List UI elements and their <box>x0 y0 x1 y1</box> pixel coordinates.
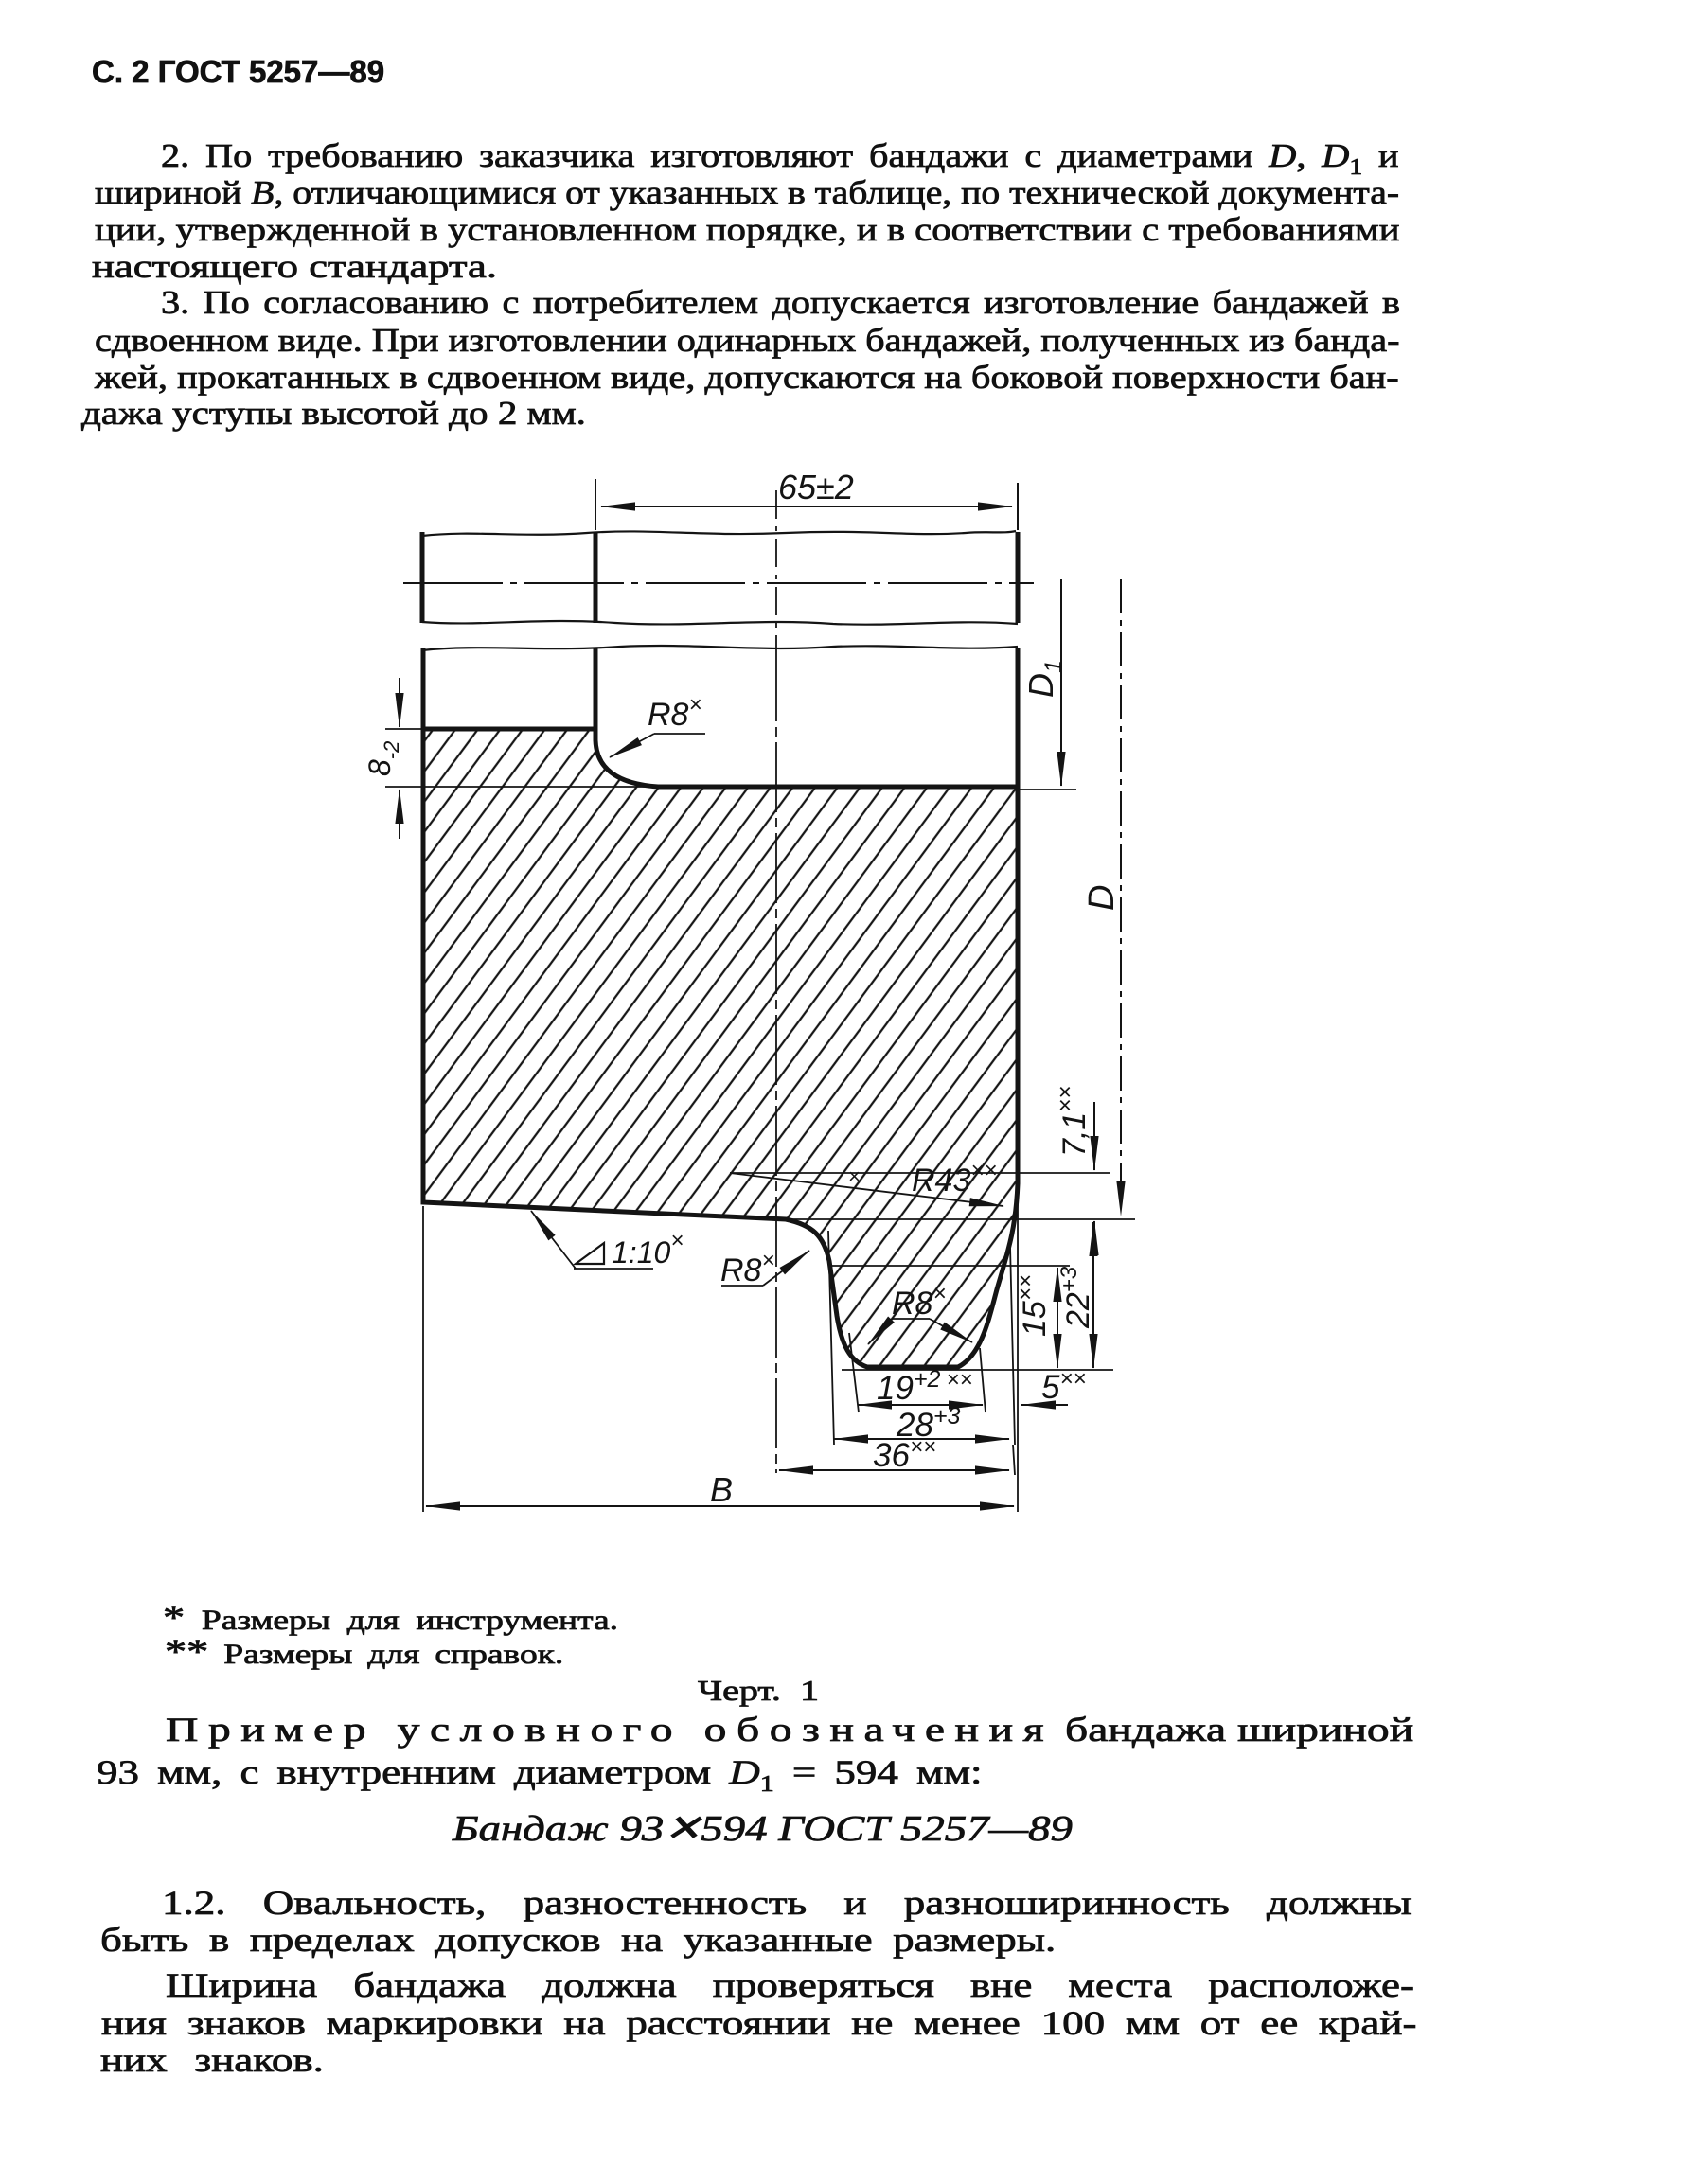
svg-text:22+3: 22+3 <box>1057 1266 1096 1329</box>
svg-text:65±2: 65±2 <box>778 468 854 506</box>
svg-text:D: D <box>1082 885 1122 911</box>
svg-text:8-2: 8-2 <box>363 741 403 776</box>
svg-text:5××: 5×× <box>1041 1366 1087 1406</box>
svg-text:36××: 36×× <box>873 1434 936 1474</box>
svg-text:19+2××: 19+2×× <box>877 1366 972 1407</box>
svg-text:B: B <box>710 1470 733 1509</box>
svg-text:×: × <box>848 1164 861 1188</box>
svg-text:7,1××: 7,1×× <box>1053 1086 1092 1157</box>
svg-text:R8×: R8× <box>648 692 701 733</box>
svg-text:15××: 15×× <box>1013 1274 1053 1337</box>
svg-text:D1: D1 <box>1021 660 1067 698</box>
svg-text:1:10×: 1:10× <box>612 1228 684 1270</box>
